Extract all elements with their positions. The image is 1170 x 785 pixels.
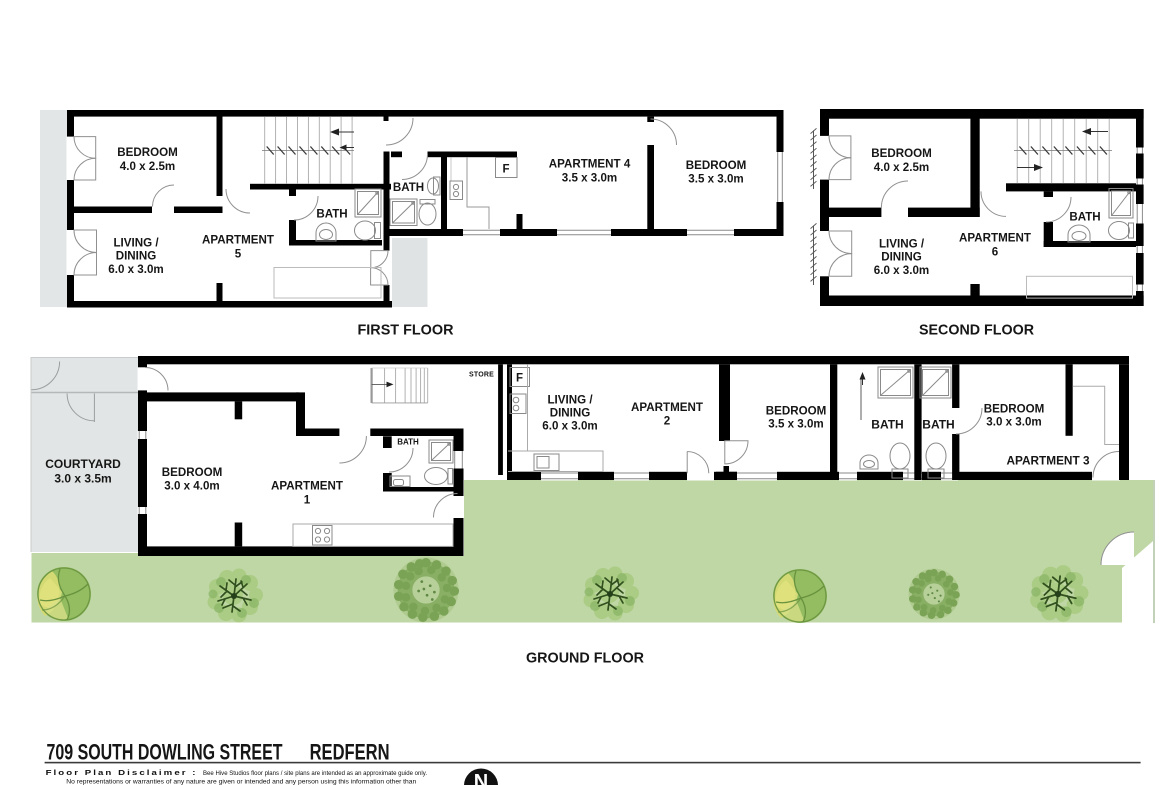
svg-text:1: 1 — [304, 494, 311, 507]
svg-text:DINING: DINING — [116, 250, 157, 263]
svg-text:BEDROOM: BEDROOM — [686, 159, 747, 172]
svg-text:No representations or warranti: No representations or warranties of any … — [66, 779, 416, 785]
svg-text:3.0 x 3.0m: 3.0 x 3.0m — [986, 416, 1041, 429]
svg-text:6: 6 — [992, 246, 999, 259]
svg-text:BATH: BATH — [871, 418, 903, 432]
svg-text:Floor Plan Disclaimer :: Floor Plan Disclaimer : — [46, 770, 198, 777]
svg-text:APARTMENT: APARTMENT — [959, 232, 1031, 245]
svg-text:BEDROOM: BEDROOM — [162, 466, 223, 479]
svg-text:3.5 x 3.0m: 3.5 x 3.0m — [688, 173, 743, 186]
svg-text:BEDROOM: BEDROOM — [117, 146, 178, 159]
svg-text:BEDROOM: BEDROOM — [766, 405, 827, 418]
svg-text:709 SOUTH DOWLING STREET: 709 SOUTH DOWLING STREET — [47, 740, 283, 765]
svg-text:FIRST FLOOR: FIRST FLOOR — [358, 323, 454, 339]
svg-text:3.5 x 3.0m: 3.5 x 3.0m — [562, 172, 617, 185]
svg-text:6.0 x 3.0m: 6.0 x 3.0m — [542, 420, 597, 433]
svg-text:BEDROOM: BEDROOM — [871, 147, 932, 160]
svg-text:LIVING /: LIVING / — [547, 394, 593, 407]
svg-text:APARTMENT: APARTMENT — [271, 480, 343, 493]
svg-text:BATH: BATH — [393, 181, 424, 194]
svg-text:LIVING /: LIVING / — [113, 237, 159, 250]
svg-text:BATH: BATH — [397, 438, 419, 447]
svg-text:APARTMENT 4: APARTMENT 4 — [549, 158, 631, 171]
svg-text:APARTMENT: APARTMENT — [631, 401, 703, 414]
svg-text:REDFERN: REDFERN — [310, 740, 390, 765]
svg-text:APARTMENT 3: APARTMENT 3 — [1006, 454, 1089, 468]
svg-text:BATH: BATH — [316, 208, 347, 221]
svg-text:F: F — [502, 164, 509, 176]
svg-text:GROUND FLOOR: GROUND FLOOR — [526, 651, 644, 667]
svg-text:BATH: BATH — [922, 418, 954, 432]
svg-text:APARTMENT: APARTMENT — [202, 234, 274, 247]
svg-text:LIVING /: LIVING / — [879, 238, 925, 251]
svg-text:STORE: STORE — [469, 372, 494, 379]
svg-text:COURTYARD: COURTYARD — [45, 457, 121, 471]
svg-text:BATH: BATH — [1069, 211, 1100, 224]
svg-text:6.0 x 3.0m: 6.0 x 3.0m — [874, 264, 929, 277]
svg-text:Bee Hive Studios floor plans: Bee Hive Studios floor plans / site plan… — [203, 770, 427, 777]
svg-text:4.0 x 2.5m: 4.0 x 2.5m — [874, 161, 929, 174]
svg-text:3.5 x 3.0m: 3.5 x 3.0m — [768, 418, 823, 431]
svg-text:DINING: DINING — [550, 407, 591, 420]
svg-text:SECOND FLOOR: SECOND FLOOR — [919, 323, 1034, 339]
svg-text:2: 2 — [664, 415, 670, 428]
svg-text:3.0 x 4.0m: 3.0 x 4.0m — [164, 480, 219, 493]
svg-text:F: F — [516, 373, 523, 385]
svg-text:6.0 x 3.0m: 6.0 x 3.0m — [108, 263, 163, 276]
svg-text:4.0 x 2.5m: 4.0 x 2.5m — [120, 160, 175, 173]
svg-text:DINING: DINING — [881, 251, 922, 264]
svg-text:N: N — [474, 771, 488, 785]
svg-text:5: 5 — [235, 248, 242, 261]
svg-text:3.0 x 3.5m: 3.0 x 3.5m — [54, 472, 111, 486]
svg-text:BEDROOM: BEDROOM — [984, 403, 1045, 416]
